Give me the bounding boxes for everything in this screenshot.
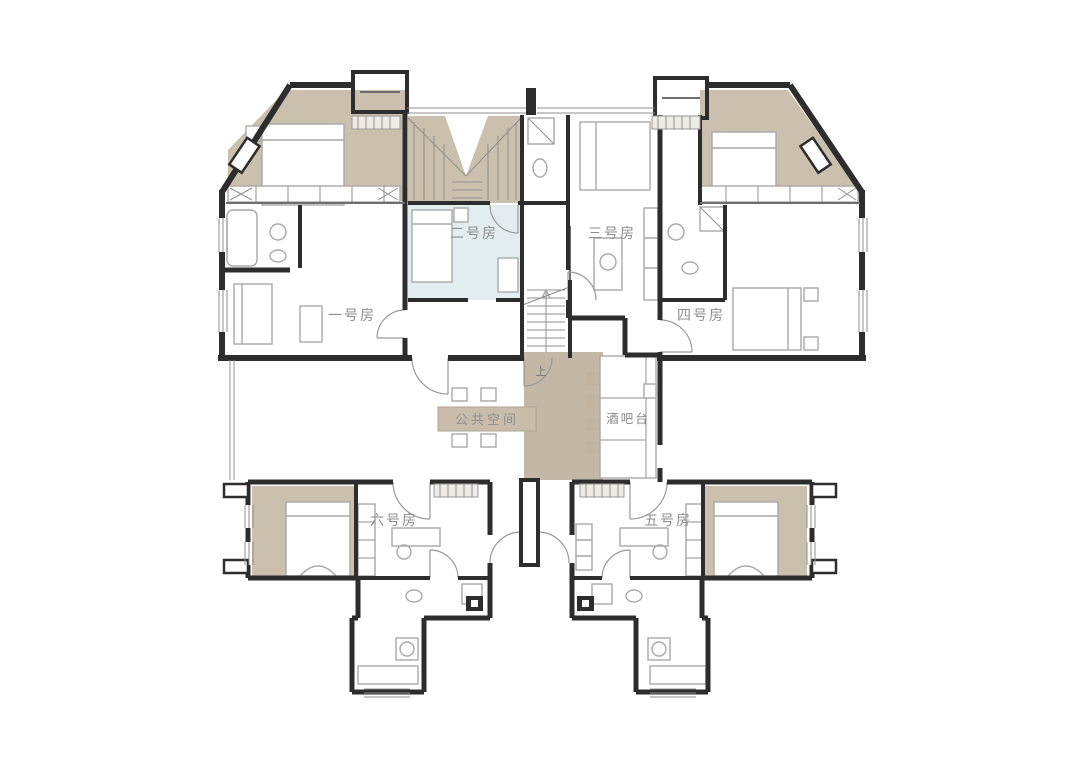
door-swing [602,550,630,578]
sink-symbol [592,584,612,604]
bar-stool [586,441,599,454]
floor-plan-page: 一号房 二号房 三号房 四号房 五号房 六号房 公共空间 酒吧台 上 [0,0,1080,764]
staircase [520,286,572,352]
bar-stool [586,372,599,385]
door-swing [377,310,405,338]
chair-symbol [452,434,467,447]
toilet-symbol [533,159,547,177]
vent-grille-icon [652,116,700,129]
window-sill [224,484,248,497]
table-symbol [300,306,322,342]
floor-plan-svg: 一号房 二号房 三号房 四号房 五号房 六号房 公共空间 酒吧台 上 [0,0,1080,764]
bed-symbol [412,210,452,282]
sofa-symbol [576,524,592,570]
nightstand [804,288,818,301]
room-1-label: 一号房 [328,307,376,323]
sofa-symbol [644,208,658,300]
desk-symbol [498,258,518,292]
chair-symbol [481,434,496,447]
toilet-symbol [406,590,422,602]
bed-symbol [714,502,778,576]
room-3-label: 三号房 [588,225,636,241]
closet-row [228,186,400,202]
room-2-label: 二号房 [450,225,498,241]
washer-symbol [648,638,670,660]
door-swing [430,550,458,578]
sink-symbol [644,384,656,398]
window-sill [812,484,836,497]
sofa-symbol [234,284,272,344]
public-space-label: 公共空间 [455,412,519,427]
chair-symbol [397,545,411,559]
wall-pillar [521,480,538,565]
room-5-label: 五号房 [644,512,692,528]
window-sill [812,560,836,573]
sink-symbol [668,224,684,240]
nightstand [454,208,468,222]
counter-symbol [358,666,418,684]
bar-counter-label: 酒吧台 [606,411,650,426]
vent-grille-icon [580,484,624,497]
washer-symbol [396,638,418,660]
bathtub-symbol [227,210,257,266]
bed-symbol [580,122,650,190]
door-swing [568,272,596,300]
door-swing [490,532,521,563]
wall-post [526,88,536,115]
toilet-symbol [682,262,698,274]
closet-row [700,186,858,202]
room-4-label: 四号房 [677,307,725,323]
bed-symbol [286,502,350,576]
bar-stool [586,418,599,431]
sink-symbol [270,224,286,240]
toilet-symbol [626,590,642,602]
desk-symbol [620,528,668,546]
bar-stool [586,395,599,408]
vent-grille-icon [434,484,478,497]
door-swing [660,320,692,352]
chair-symbol [452,388,467,401]
room-6-label: 六号房 [370,512,418,528]
table-symbol [594,238,622,290]
chair-symbol [653,545,667,559]
door-swing [412,358,448,394]
stairs-up-label: 上 [536,365,547,378]
desk-symbol [392,528,440,546]
toilet-symbol [270,250,286,262]
bed-symbol [733,288,801,350]
nightstand [804,337,818,350]
counter-symbol [650,666,706,684]
chair-symbol [481,388,496,401]
door-swing [538,532,569,563]
window-sill [224,560,248,573]
vent-grille-icon [352,116,400,129]
